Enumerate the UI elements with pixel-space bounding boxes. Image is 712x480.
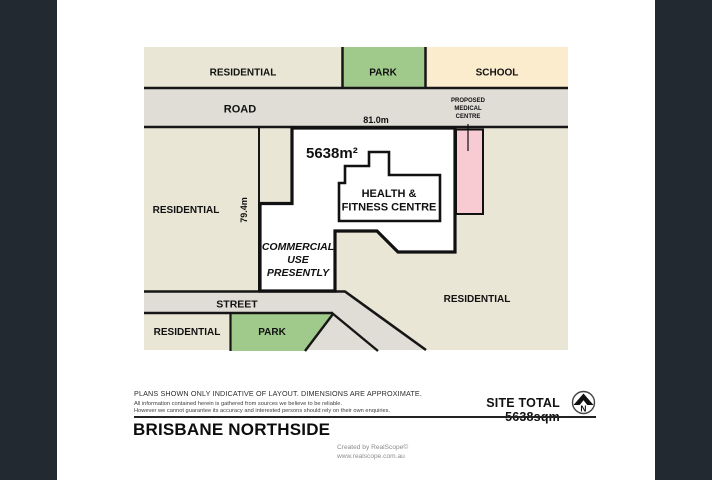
label-school: SCHOOL [476, 68, 519, 79]
disclaimer-line-2: All information contained herein is gath… [134, 401, 434, 408]
label-building-1: HEALTH & [362, 188, 417, 200]
north-indicator: N [571, 390, 596, 415]
label-residential-left: RESIDENTIAL [153, 205, 220, 216]
label-road: ROAD [224, 104, 256, 116]
credit-line-1: Created by RealScope© [337, 443, 408, 452]
label-park-top: PARK [369, 68, 397, 79]
road-band [144, 88, 568, 128]
credit-line-2: www.realscope.com.au [337, 452, 408, 461]
credits: Created by RealScope© www.realscope.com.… [337, 443, 408, 461]
footer-divider [134, 416, 596, 418]
label-residential-top: RESIDENTIAL [210, 68, 277, 79]
page-title: BRISBANE NORTHSIDE [133, 420, 330, 440]
label-building-2: FITNESS CENTRE [342, 202, 437, 214]
disclaimer: PLANS SHOWN ONLY INDICATIVE OF LAYOUT. D… [134, 390, 434, 415]
label-proposed-2: MEDICAL [454, 106, 482, 112]
label-park-bottom: PARK [258, 327, 286, 338]
page: RESIDENTIAL PARK SCHOOL ROAD 81.0m PROPO… [0, 0, 712, 480]
north-letter: N [580, 404, 586, 414]
disclaimer-line-1: PLANS SHOWN ONLY INDICATIVE OF LAYOUT. D… [134, 390, 434, 399]
label-commercial-1: COMMERCIAL [262, 241, 334, 253]
label-commercial-2: USE [287, 254, 310, 266]
label-commercial-3: PRESENTLY [267, 267, 330, 279]
label-residential-right: RESIDENTIAL [444, 294, 511, 305]
label-site-area: 5638m² [306, 145, 358, 162]
label-proposed-1: PROPOSED [451, 98, 486, 104]
label-residential-bottom: RESIDENTIAL [154, 327, 221, 338]
dim-depth: 79.4m [239, 197, 249, 223]
medical-site [456, 130, 483, 215]
dim-frontage: 81.0m [363, 115, 389, 125]
label-street: STREET [216, 299, 258, 311]
label-proposed-3: CENTRE [456, 114, 481, 120]
disclaimer-line-3: However we cannot guarantee its accuracy… [134, 408, 434, 415]
site-total: SITE TOTAL 5638sqm [444, 396, 560, 424]
